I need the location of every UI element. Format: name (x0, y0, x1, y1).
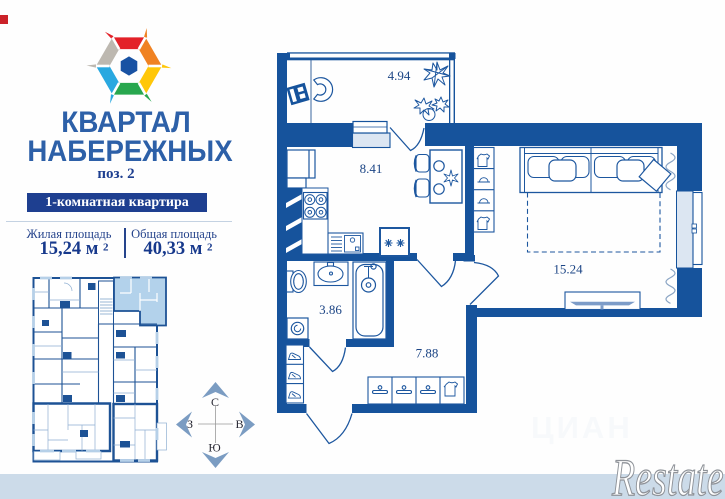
svg-text:Ю: Ю (208, 441, 220, 455)
svg-text:3.86: 3.86 (319, 302, 342, 317)
svg-text:15.24: 15.24 (553, 262, 583, 277)
svg-text:7.88: 7.88 (416, 346, 439, 361)
svg-text:8.41: 8.41 (360, 161, 383, 176)
svg-text:4.94: 4.94 (388, 68, 411, 83)
svg-text:С: С (211, 395, 219, 409)
svg-text:З: З (187, 417, 193, 431)
svg-text:В: В (235, 417, 243, 431)
svg-text:Restate: Restate (611, 448, 723, 499)
